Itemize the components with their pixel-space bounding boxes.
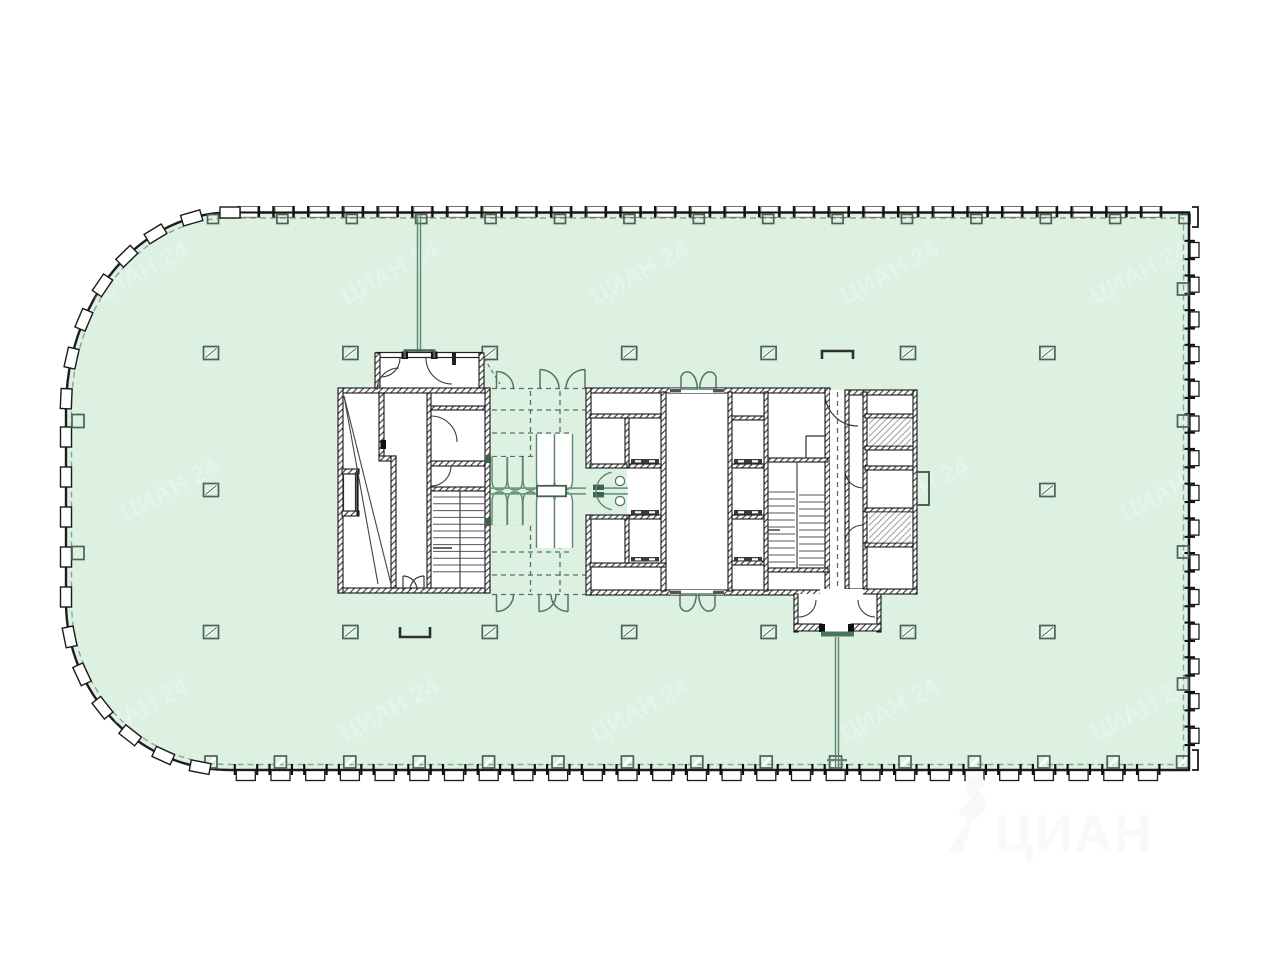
svg-text:ЦИАН: ЦИАН <box>995 805 1153 863</box>
